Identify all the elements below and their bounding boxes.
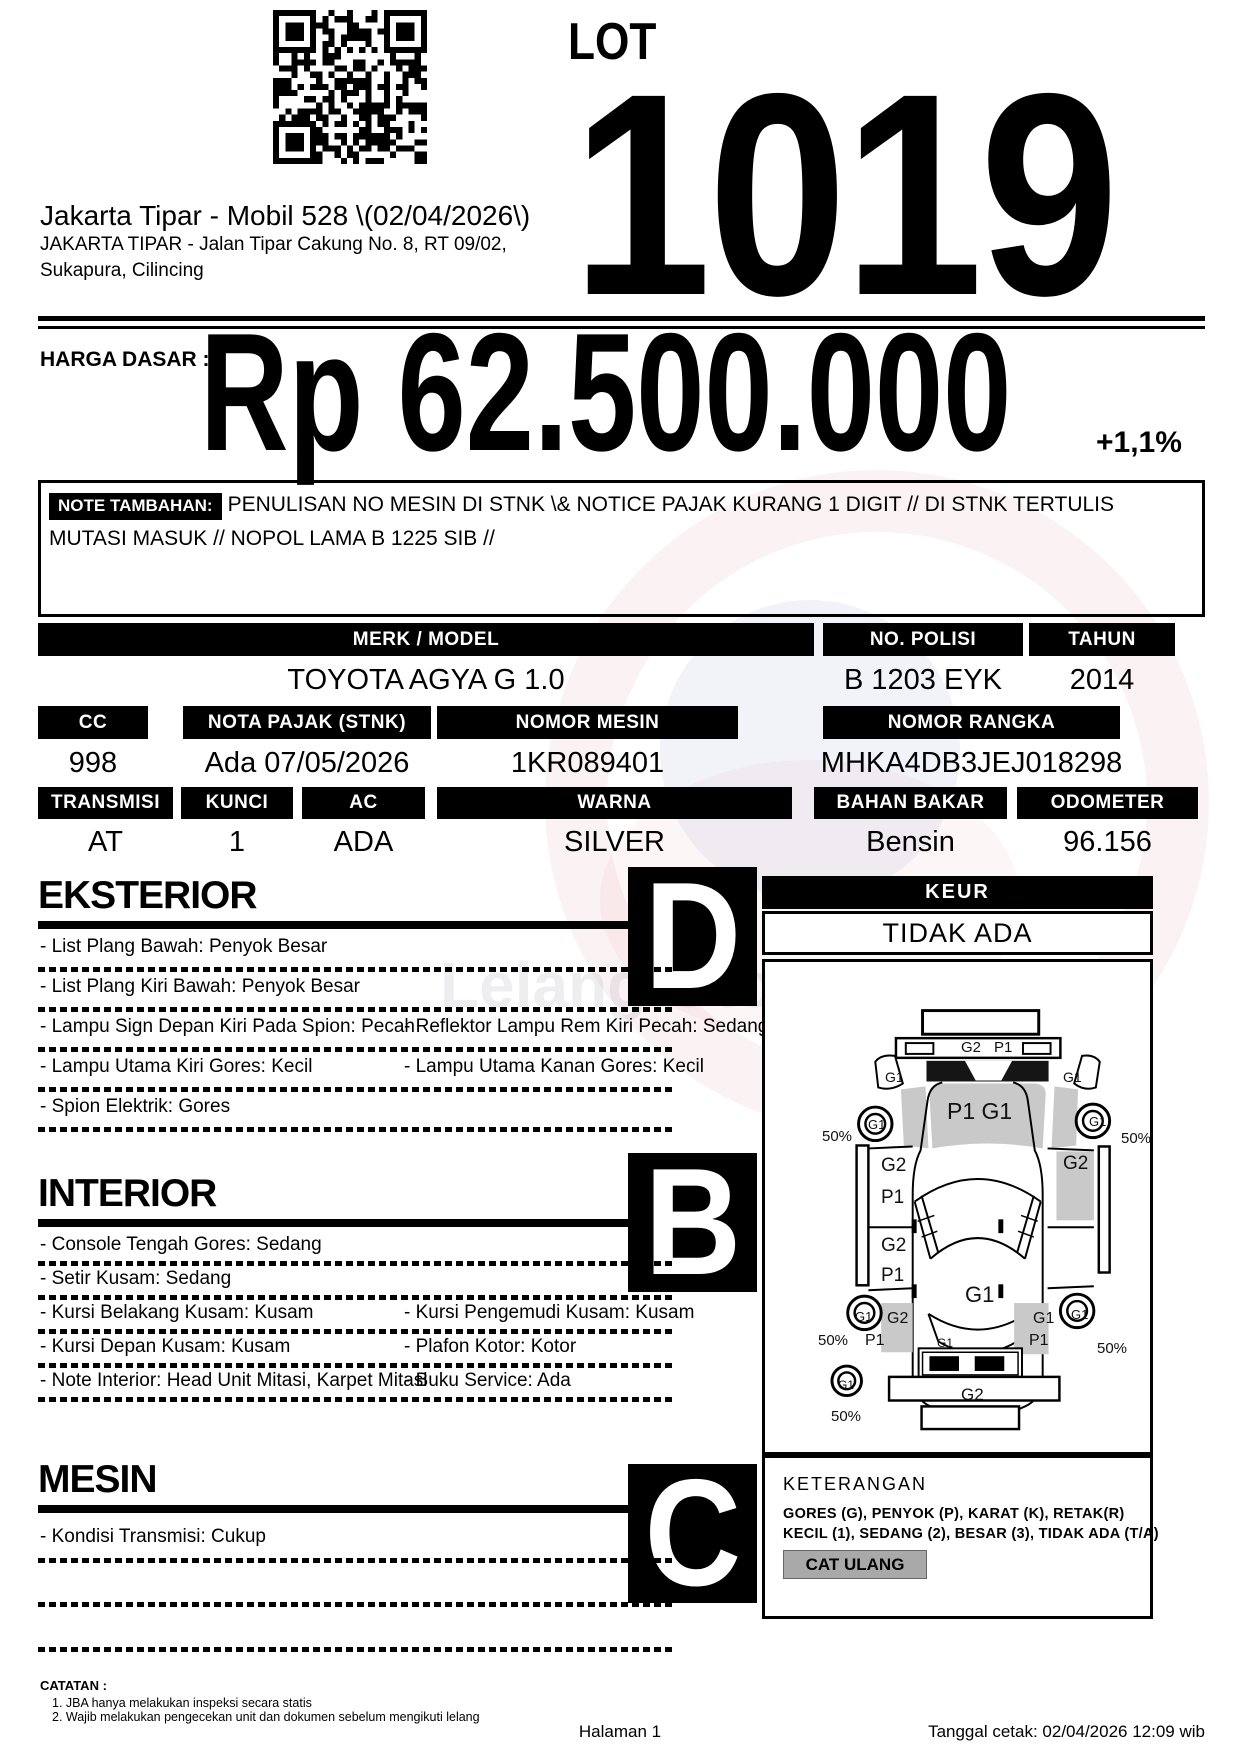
keur-value: TIDAK ADA	[762, 911, 1153, 955]
diagram-label: G1	[937, 1337, 953, 1349]
diagram-label: G1	[885, 1070, 904, 1084]
spec-header-merk-model: MERK / MODEL	[38, 623, 814, 656]
damage-item: - Kursi Depan Kusam: Kusam	[40, 1336, 290, 1358]
damage-item: - Lampu Utama Kanan Gores: Kecil	[404, 1056, 704, 1078]
damage-item: - Buku Service: Ada	[404, 1370, 571, 1392]
diagram-label: P1	[994, 1040, 1012, 1055]
spec-value-odometer: 96.156	[1017, 822, 1198, 862]
diagram-label: G2	[881, 1156, 906, 1175]
spec-header-bahan-bakar: BAHAN BAKAR	[814, 787, 1007, 819]
damage-item: - Console Tengah Gores: Sedang	[40, 1234, 322, 1256]
auction-address-line2: Sukapura, Cilincing	[40, 260, 204, 282]
diagram-label: P1	[881, 1266, 904, 1285]
spec-value-nota-pajak-stnk-: Ada 07/05/2026	[183, 743, 431, 783]
spec-value-tahun: 2014	[1029, 660, 1175, 700]
diagram-label: G1	[1063, 1070, 1082, 1084]
section-underline-eksterior	[38, 921, 630, 929]
diagram-label: G1	[1033, 1311, 1054, 1327]
grade-letter-eksterior: D	[644, 849, 741, 1024]
keur-header: KEUR	[762, 876, 1153, 909]
spec-header-kunci: KUNCI	[181, 787, 293, 819]
diagram-label: P1	[865, 1333, 885, 1349]
item-separator	[38, 1329, 675, 1334]
car-damage-diagram: G2P1G1G1P1 G1G1G150%50%G2P1G2G2P1G1G2P1G…	[762, 959, 1153, 1458]
spec-header-odometer: ODOMETER	[1017, 787, 1198, 819]
base-price-value: Rp 62.500.000	[200, 308, 1011, 476]
damage-item: - Plafon Kotor: Kotor	[404, 1336, 576, 1358]
spec-value-ac: ADA	[302, 822, 425, 862]
spec-value-nomor-rangka: MHKA4DB3JEJ018298	[823, 743, 1120, 783]
item-separator	[38, 1397, 675, 1402]
diagram-label: G1	[1071, 1308, 1088, 1321]
cat-ulang-badge: CAT ULANG	[783, 1550, 927, 1579]
price-increment: +1,1%	[1096, 426, 1182, 460]
damage-item: - List Plang Kiri Bawah: Penyok Besar	[40, 976, 360, 998]
diagram-label: G2	[881, 1236, 906, 1255]
item-separator	[38, 1647, 675, 1652]
spec-header-nota-pajak-stnk-: NOTA PAJAK (STNK)	[183, 706, 431, 739]
diagram-label: G1	[868, 1118, 885, 1131]
diagram-label: 50%	[1121, 1131, 1151, 1146]
auction-lot-sheet: Lelang Otomotif No.1 LOT 1019 Jakarta Ti…	[0, 0, 1240, 1754]
item-separator	[38, 1127, 675, 1132]
spec-value-nomor-mesin: 1KR089401	[437, 743, 738, 783]
diagram-label: 50%	[822, 1129, 852, 1144]
spec-header-warna: WARNA	[437, 787, 792, 819]
damage-item: - Kondisi Transmisi: Cukup	[40, 1526, 266, 1548]
damage-item: - List Plang Bawah: Penyok Besar	[40, 936, 327, 958]
legend-line-2: KECIL (1), SEDANG (2), BESAR (3), TIDAK …	[783, 1526, 1159, 1542]
diagram-label: G2	[961, 1386, 984, 1403]
spec-header-no-polisi: NO. POLISI	[823, 623, 1023, 656]
damage-item: - Reflektor Lampu Rem Kiri Pecah: Sedang	[404, 1016, 768, 1038]
section-underline-mesin	[38, 1505, 630, 1513]
keterangan-panel: KETERANGAN GORES (G), PENYOK (P), KARAT …	[762, 1452, 1153, 1619]
diagram-label: G1	[965, 1284, 994, 1306]
damage-item: - Spion Elektrik: Gores	[40, 1096, 230, 1118]
item-separator	[38, 1047, 675, 1052]
item-separator	[38, 1558, 675, 1563]
section-title-mesin: MESIN	[38, 1458, 157, 1502]
diagram-label: 50%	[831, 1409, 861, 1424]
diagram-label: P1	[881, 1188, 904, 1207]
diagram-label: 50%	[818, 1333, 848, 1348]
note-label: NOTE TAMBAHAN:	[49, 493, 222, 520]
damage-item: - Setir Kusam: Sedang	[40, 1268, 231, 1290]
diagram-label: G1	[855, 1310, 872, 1323]
base-price-label: HARGA DASAR :	[40, 348, 210, 372]
item-separator	[38, 1261, 675, 1266]
auction-address-line1: JAKARTA TIPAR - Jalan Tipar Cakung No. 8…	[40, 234, 507, 256]
spec-value-kunci: 1	[181, 822, 293, 862]
damage-item: - Lampu Sign Depan Kiri Pada Spion: Peca…	[40, 1016, 415, 1038]
spec-header-tahun: TAHUN	[1029, 623, 1175, 656]
grade-letter-mesin: C	[644, 1446, 741, 1621]
damage-item: - Note Interior: Head Unit Mitasi, Karpe…	[40, 1370, 428, 1392]
diagram-label: P1	[1029, 1333, 1049, 1349]
item-separator	[38, 1602, 675, 1607]
spec-header-nomor-mesin: NOMOR MESIN	[437, 706, 738, 739]
qr-code	[273, 10, 427, 164]
diagram-label: G1	[838, 1379, 854, 1391]
grade-letter-interior: B	[644, 1135, 741, 1310]
catatan-note: 1. JBA hanya melakukan inspeksi secara s…	[52, 1696, 312, 1710]
grade-badge-eksterior: D	[628, 867, 757, 1006]
item-separator	[38, 1295, 675, 1300]
spec-header-cc: CC	[38, 706, 148, 739]
note-box: NOTE TAMBAHAN:PENULISAN NO MESIN DI STNK…	[38, 480, 1205, 617]
spec-value-bahan-bakar: Bensin	[814, 822, 1007, 862]
auction-title: Jakarta Tipar - Mobil 528 \(02/04/2026\)	[40, 200, 530, 232]
grade-badge-interior: B	[628, 1153, 757, 1292]
spec-header-nomor-rangka: NOMOR RANGKA	[823, 706, 1120, 739]
spec-value-merk-model: TOYOTA AGYA G 1.0	[38, 660, 814, 700]
diagram-label: G2	[887, 1311, 908, 1327]
section-title-interior: INTERIOR	[38, 1172, 216, 1216]
item-separator	[38, 1087, 675, 1092]
item-separator	[38, 1363, 675, 1368]
section-title-eksterior: EKSTERIOR	[38, 874, 257, 918]
diagram-label: G2	[961, 1040, 981, 1055]
section-underline-interior	[38, 1219, 630, 1227]
diagram-label: P1 G1	[947, 1100, 1012, 1123]
damage-item: - Kursi Belakang Kusam: Kusam	[40, 1302, 314, 1324]
item-separator	[38, 967, 675, 972]
legend-line-1: GORES (G), PENYOK (P), KARAT (K), RETAK(…	[783, 1506, 1125, 1522]
damage-item: - Kursi Pengemudi Kusam: Kusam	[404, 1302, 694, 1324]
spec-header-ac: AC	[302, 787, 425, 819]
damage-item: - Lampu Utama Kiri Gores: Kecil	[40, 1056, 312, 1078]
diagram-label: G2	[1063, 1154, 1088, 1173]
keterangan-title: KETERANGAN	[783, 1474, 927, 1495]
grade-badge-mesin: C	[628, 1464, 757, 1603]
spec-value-no-polisi: B 1203 EYK	[823, 660, 1023, 700]
spec-value-transmisi: AT	[38, 822, 173, 862]
spec-header-transmisi: TRANSMISI	[38, 787, 173, 819]
item-separator	[38, 1007, 675, 1012]
catatan-title: CATATAN :	[40, 1678, 107, 1693]
diagram-label: G1	[1089, 1115, 1106, 1128]
spec-value-cc: 998	[38, 743, 148, 783]
print-timestamp: Tanggal cetak: 02/04/2026 12:09 wib	[928, 1722, 1205, 1742]
diagram-label: 50%	[1097, 1341, 1127, 1356]
